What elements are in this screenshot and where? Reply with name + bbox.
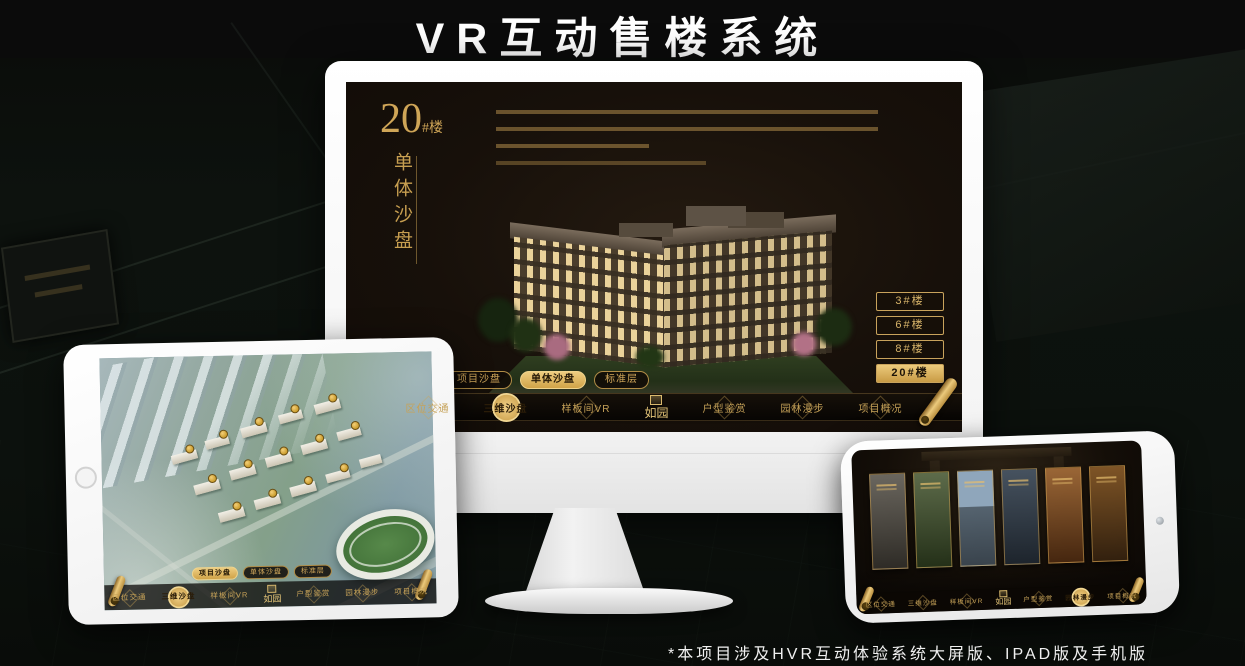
scene-gallery: [869, 465, 1128, 570]
phone-mockup: 区位交通 三维沙盘 样板间VR 如园 户型鉴赏 园林漫步 项目概况: [840, 430, 1180, 624]
nav-item-location[interactable]: 区位交通: [112, 591, 146, 603]
brand-logo[interactable]: 如园: [995, 590, 1012, 607]
home-button[interactable]: [75, 466, 97, 488]
scene-card[interactable]: [1045, 466, 1084, 563]
floor-button-3[interactable]: 3#楼: [876, 292, 944, 311]
page-title: VR互动售楼系统: [0, 4, 1245, 66]
nav-item-3d-sandbox[interactable]: 三维沙盘: [908, 596, 938, 607]
tab-project-sandbox[interactable]: 项目沙盘: [446, 371, 512, 389]
block-label: 20#楼: [380, 98, 443, 140]
tablet-mockup: 项目沙盘 单体沙盘 标准层 区位交通 三维沙盘 样板间VR 如园 户型鉴赏 园林…: [63, 337, 459, 625]
floor-button-list: 3#楼 6#楼 8#楼 20#楼: [876, 292, 944, 388]
nav-item-floorplans[interactable]: 户型鉴赏: [702, 400, 746, 415]
monitor-base: [485, 588, 733, 614]
scene-card[interactable]: [957, 470, 996, 567]
floor-button-8[interactable]: 8#楼: [876, 340, 944, 359]
nav-item-showroom-vr[interactable]: 样板间VR: [210, 589, 248, 601]
bg-aerial-photo: [957, 48, 1245, 342]
floor-button-20[interactable]: 20#楼: [876, 364, 944, 383]
footnote: *本项目涉及HVR互动体验系统大屏版、IPAD版及手机版: [668, 640, 1148, 664]
camera-icon: [1156, 517, 1164, 525]
nav-item-showroom-vr[interactable]: 样板间VR: [950, 594, 984, 605]
tab-standard-floor[interactable]: 标准层: [594, 371, 649, 389]
tree: [510, 318, 542, 352]
tab-single-sandbox[interactable]: 单体沙盘: [520, 371, 586, 389]
tree: [816, 308, 852, 346]
nav-item-garden-walk[interactable]: 园林漫步: [345, 587, 379, 599]
nav-item-showroom-vr[interactable]: 样板间VR: [562, 400, 611, 415]
block-divider: [416, 156, 417, 264]
tab-project-sandbox[interactable]: 项目沙盘: [192, 567, 238, 581]
seal-icon: [268, 585, 277, 593]
nav-item-3d-sandbox[interactable]: 三维沙盘: [484, 400, 528, 415]
scene-card[interactable]: [1001, 468, 1040, 565]
nav-item-floorplans[interactable]: 户型鉴赏: [296, 588, 330, 600]
tree: [544, 334, 570, 360]
nav-item-project-overview[interactable]: 项目概况: [1107, 589, 1137, 600]
nav-item-project-overview[interactable]: 项目概况: [858, 400, 902, 415]
bg-plaque: [1, 229, 119, 343]
scene-card[interactable]: [913, 471, 952, 568]
promo-canvas: VR互动售楼系统 20#楼 单体沙盘: [0, 0, 1245, 666]
block-suffix: #楼: [422, 121, 443, 136]
nav-item-garden-walk[interactable]: 园林漫步: [780, 400, 824, 415]
nav-item-garden-walk[interactable]: 园林漫步: [1065, 591, 1095, 602]
brand-logo[interactable]: 如园: [644, 395, 668, 420]
scene-card[interactable]: [869, 473, 908, 570]
tab-single-sandbox[interactable]: 单体沙盘: [243, 565, 289, 579]
phone-screen: 区位交通 三维沙盘 样板间VR 如园 户型鉴赏 园林漫步 项目概况: [851, 440, 1147, 614]
mode-tabs: 项目沙盘 单体沙盘 标准层: [446, 371, 649, 389]
tab-standard-floor[interactable]: 标准层: [294, 565, 332, 579]
nav-item-floorplans[interactable]: 户型鉴赏: [1023, 592, 1053, 603]
nav-item-location[interactable]: 区位交通: [406, 400, 450, 415]
tablet-screen: 项目沙盘 单体沙盘 标准层 区位交通 三维沙盘 样板间VR 如园 户型鉴赏 园林…: [99, 351, 436, 610]
tree: [636, 346, 664, 368]
building-penthouse: [686, 206, 746, 226]
nav-item-3d-sandbox[interactable]: 三维沙盘: [161, 590, 195, 602]
nav-item-project-overview[interactable]: 项目概况: [394, 586, 428, 598]
scene-card[interactable]: [1089, 465, 1128, 562]
block-subtitle: 单体沙盘: [388, 152, 415, 256]
tree: [792, 332, 816, 356]
block-number: 20: [380, 96, 422, 142]
building-model: [486, 168, 856, 404]
brand-logo[interactable]: 如园: [263, 585, 281, 604]
nav-item-location[interactable]: 区位交通: [866, 598, 896, 609]
seal-icon: [650, 395, 662, 405]
floor-button-6[interactable]: 6#楼: [876, 316, 944, 335]
